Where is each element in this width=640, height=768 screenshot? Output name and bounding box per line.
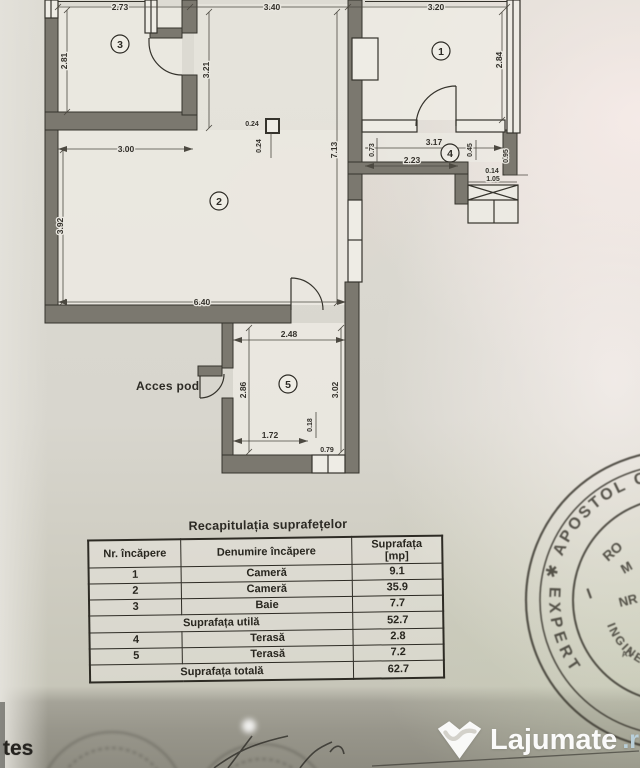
lajumate-watermark: Lajumate.ro [436,720,640,760]
watermark-brand: Lajumate [490,724,617,757]
dim-room3-right: 3.21 [201,61,211,78]
scanned-floor-plan-page: 2.73 3.40 3.20 2.81 3.21 2.84 7.13 3.00 … [0,0,640,768]
dim-room1-top: 3.20 [428,2,445,12]
dim-room5-right: 3.02 [330,381,340,398]
dim-hall-bottom: 2.23 [404,155,421,165]
room-label-3: 3 [117,39,123,51]
dim-room5-bottom: 1.72 [262,430,279,440]
dim-room5-top: 2.48 [281,329,298,339]
dim-top-middle: 3.40 [264,2,281,12]
attic-access-label: Acces pod [136,379,199,393]
dim-hall-top: 3.17 [426,137,443,147]
stamp-inner-nr: NR [617,591,639,610]
attic-door-arc [200,374,224,398]
room-label-2: 2 [216,196,222,208]
subtotal-value: 52.7 [353,611,444,629]
svg-text:INGINER: INGINER [604,621,640,671]
stamp-inner-m: M [618,558,635,576]
expert-stamp: ✱ APOSTOL O.T. EXPERT INGINER RO M I NR … [526,451,640,749]
dim-room2-left: 3.92 [55,217,65,234]
header-suprafata: Suprafața [mp] [352,536,443,565]
dim-hall-right: 0.95 [503,149,510,163]
dim-steps-gap: 0.14 [485,168,499,175]
dim-steps-width: 1.05 [486,176,500,183]
total-label: Suprafața totală [90,661,354,682]
dim-pillar-h: 0.24 [256,139,263,153]
dim-room5-window: 0.79 [320,447,334,454]
stamp-inner-i: I [585,585,595,602]
dim-room2-bottom: 6.40 [194,297,211,307]
dim-room5-left: 2.86 [238,381,248,398]
dim-center-height: 7.13 [329,141,339,158]
dim-room3-top: 2.73 [112,2,129,12]
room-label-4: 4 [447,148,453,160]
stamp-inner-a1: A1. [621,648,635,659]
dim-room1-right: 2.84 [494,51,504,68]
dim-hall-mid: 0.45 [467,143,474,157]
dim-room3-opening: 3.00 [118,144,135,154]
room-label-1: 1 [438,46,444,58]
header-nr: Nr. încăpere [88,539,181,568]
margin-text: tes [3,737,33,761]
pillar [266,119,279,133]
scan-glare-dot [242,719,256,733]
dim-pillar-w: 0.24 [245,121,259,128]
dim-hall-left: 0.73 [369,143,376,157]
area-table: Nr. încăpere Denumire încăpere Suprafața… [87,535,445,684]
area-summary: Recapitulația suprafețelor Nr. încăpere … [87,515,451,683]
lajumate-logo-icon [436,720,483,760]
dim-room3-left: 2.81 [59,52,69,69]
header-denumire: Denumire încăpere [181,537,352,567]
watermark-tld: .ro [622,726,640,755]
dim-room5-niche: 0.18 [307,418,314,432]
total-value: 62.7 [353,660,444,679]
stamp-inginer-arc: INGINER [604,621,640,671]
total-row: Suprafața totală 62.7 [90,660,444,682]
faint-stamps [38,732,332,768]
exterior-steps [468,185,518,223]
room-label-5: 5 [285,379,291,391]
